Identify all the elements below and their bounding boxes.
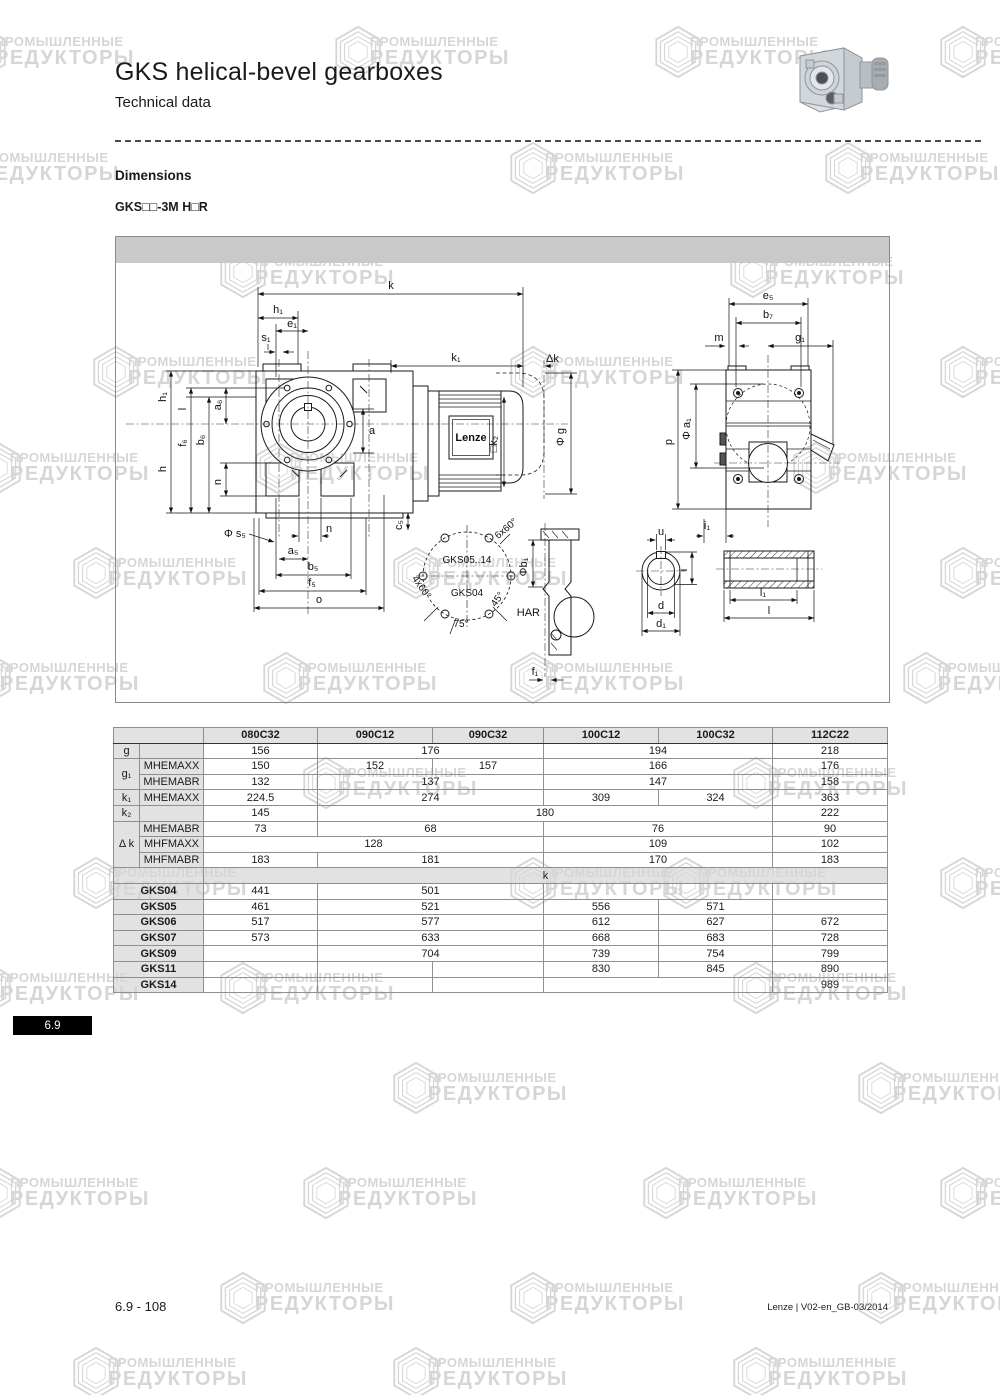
table-cell <box>433 961 544 977</box>
table-row: k <box>114 868 888 884</box>
table-cell <box>204 946 318 962</box>
table-cell: 627 <box>659 915 773 931</box>
watermark-line1: ПРОМЫШЛЕННЫЕ <box>545 1281 685 1295</box>
table-cell: 183 <box>204 852 318 868</box>
watermark-line1: ПРОМЫШЛЕННЫЕ <box>893 1071 1000 1085</box>
dim-label-n-bottom: n <box>326 523 332 535</box>
dim-label-l-left: l <box>177 408 189 410</box>
table-row: MHFMABR183181170183 <box>114 852 888 868</box>
table-cell: 147 <box>544 774 773 790</box>
dim-label-s5: Φ s₅ <box>224 528 246 540</box>
table-cell: 132 <box>204 774 318 790</box>
table-cell: g₁ <box>114 759 140 790</box>
table-cell: MHEMABR <box>140 821 204 837</box>
dimensions-table: 080C32090C12090C32100C12100C32112C22g 15… <box>113 727 890 993</box>
dim-label-l1: l₁ <box>760 587 766 599</box>
dim-label-e1: e₁ <box>287 318 297 330</box>
watermark: ПРОМЫШЛЕННЫЕРЕДУКТОРЫ <box>853 1058 1000 1118</box>
watermark-line1: ПРОМЫШЛЕННЫЕ <box>545 151 685 165</box>
table-cell: 090C32 <box>433 728 544 744</box>
technical-drawing: Lenze <box>115 236 890 703</box>
dim-label-d1: d₁ <box>656 618 666 630</box>
table-cell: GKS11 <box>114 961 204 977</box>
table-cell: 73 <box>204 821 318 837</box>
table-cell: 571 <box>659 899 773 915</box>
dim-label-n-left: n <box>212 479 224 485</box>
table-cell <box>140 805 204 821</box>
watermark: ПРОМЫШЛЕННЫЕРЕДУКТОРЫ <box>728 1343 908 1395</box>
table-cell: 150 <box>204 759 318 775</box>
dim-label-a6: a₆ <box>212 400 224 411</box>
watermark-line2: РЕДУКТОРЫ <box>975 368 1000 389</box>
section-heading: Dimensions <box>115 168 192 183</box>
watermark-line1: ПРОМЫШЛЕННЫЕ <box>255 1281 395 1295</box>
watermark: ПРОМЫШЛЕННЫЕРЕДУКТОРЫ <box>388 1058 568 1118</box>
table-cell <box>204 977 318 993</box>
table-cell: 224.5 <box>204 790 318 806</box>
table-cell: MHEMABR <box>140 774 204 790</box>
watermark-hexagon-logo <box>898 648 954 708</box>
watermark-line1: ПРОМЫШЛЕННЫЕ <box>0 35 135 49</box>
table-cell <box>140 743 204 759</box>
table-cell: 754 <box>659 946 773 962</box>
table-cell: 324 <box>659 790 773 806</box>
watermark-hexagon-logo <box>935 543 991 603</box>
watermark-line1: ПРОМЫШЛЕННЫЕ <box>428 1356 568 1370</box>
watermark-hexagon-logo <box>853 1268 909 1328</box>
watermark-line2: РЕДУКТОРЫ <box>768 1369 908 1390</box>
watermark-line2: РЕДУКТОРЫ <box>893 1084 1000 1105</box>
watermark: ПРОМЫШЛЕННЫЕРЕДУКТОРЫ <box>935 342 1000 402</box>
product-photo <box>786 40 896 122</box>
table-cell: 363 <box>773 790 888 806</box>
watermark: ПРОМЫШЛЕННЫЕРЕДУКТОРЫ <box>388 1343 568 1395</box>
table-cell: 183 <box>773 852 888 868</box>
watermark-line1: ПРОМЫШЛЕННЫЕ <box>768 1356 908 1370</box>
watermark-hexagon-logo <box>298 1163 354 1223</box>
table-cell: MHFMAXX <box>140 837 204 853</box>
table-row: MHFMAXX128109102 <box>114 837 888 853</box>
dim-label-b5: b₅ <box>308 561 319 573</box>
table-cell <box>318 977 433 993</box>
watermark-line1: ПРОМЫШЛЕННЫЕ <box>975 35 1000 49</box>
dim-label-h1-left: h₁ <box>157 392 169 402</box>
table-cell: 176 <box>773 759 888 775</box>
table-cell: 158 <box>773 774 888 790</box>
table-cell <box>773 899 888 915</box>
table-cell: 76 <box>544 821 773 837</box>
table-row: GKS11 830845890 <box>114 961 888 977</box>
table-cell: 517 <box>204 915 318 931</box>
table-cell: 128 <box>204 837 544 853</box>
divider-dashed <box>115 140 985 142</box>
table-cell: k₂ <box>114 805 140 821</box>
table-cell: 170 <box>544 852 773 868</box>
watermark-hexagon-logo <box>638 1163 694 1223</box>
table-cell: g <box>114 743 140 759</box>
table-cell <box>114 868 204 884</box>
watermark-line2: РЕДУКТОРЫ <box>428 1369 568 1390</box>
dim-label-a: a <box>369 425 376 437</box>
table-cell: 194 <box>544 743 773 759</box>
watermark: ПРОМЫШЛЕННЫЕРЕДУКТОРЫ <box>0 1163 150 1223</box>
dim-label-o: o <box>316 594 322 606</box>
watermark: ПРОМЫШЛЕННЫЕРЕДУКТОРЫ <box>853 1268 1000 1328</box>
watermark-line1: ПРОМЫШЛЕННЫЕ <box>975 1176 1000 1190</box>
watermark: ПРОМЫШЛЕННЫЕРЕДУКТОРЫ <box>935 853 1000 913</box>
table-cell: MHEMAXX <box>140 759 204 775</box>
table-cell: 309 <box>544 790 659 806</box>
watermark-hexagon-logo <box>853 1058 909 1118</box>
watermark-hexagon-logo <box>0 438 26 498</box>
table-cell: 728 <box>773 930 888 946</box>
dim-label-c5: c₅ <box>393 520 405 530</box>
table-cell: 274 <box>318 790 544 806</box>
watermark: ПРОМЫШЛЕННЫЕРЕДУКТОРЫ <box>638 1163 818 1223</box>
table-cell: 222 <box>773 805 888 821</box>
dim-label-h: h <box>157 466 169 472</box>
dim-label-m: m <box>714 332 723 344</box>
watermark-hexagon-logo <box>935 1163 991 1223</box>
dim-label-b7: b₇ <box>763 309 773 321</box>
table-cell <box>204 961 318 977</box>
watermark: ПРОМЫШЛЕННЫЕРЕДУКТОРЫ <box>505 1268 685 1328</box>
table-cell <box>433 977 544 993</box>
dim-label-h1-top: h₁ <box>273 304 283 316</box>
table-cell: 633 <box>318 930 544 946</box>
table-cell: GKS06 <box>114 915 204 931</box>
table-header-row: 080C32090C12090C32100C12100C32112C22 <box>114 728 888 744</box>
dim-label-g-dia: Φ g <box>555 428 567 446</box>
dim-label-l: l <box>768 605 770 617</box>
table-cell: 573 <box>204 930 318 946</box>
table-cell: GKS07 <box>114 930 204 946</box>
watermark-hexagon-logo <box>68 1343 124 1395</box>
table-cell: Δ k <box>114 821 140 868</box>
watermark-hexagon-logo <box>935 22 991 82</box>
watermark: ПРОМЫШЛЕННЫЕРЕДУКТОРЫ <box>0 138 120 198</box>
table-row: k₂ 145180222 <box>114 805 888 821</box>
dim-label-g1: g₁ <box>795 332 805 344</box>
watermark-line2: РЕДУКТОРЫ <box>975 48 1000 69</box>
drawing-header-strip <box>116 237 889 263</box>
section-tab-badge: 6.9 <box>13 1016 92 1035</box>
table-cell <box>544 883 773 899</box>
table-cell: 68 <box>318 821 544 837</box>
dim-label-k2: □k₂ <box>488 436 500 452</box>
watermark-line1: ПРОМЫШЛЕННЫЕ <box>10 1176 150 1190</box>
watermark-line1: ПРОМЫШЛЕННЫЕ <box>938 661 1000 675</box>
table-row: k₁MHEMAXX224.5274309324363 <box>114 790 888 806</box>
watermark-hexagon-logo <box>388 1343 444 1395</box>
watermark-hexagon-logo <box>820 138 876 198</box>
table-cell: GKS14 <box>114 977 204 993</box>
table-cell: 577 <box>318 915 544 931</box>
detail-label-4x60: 4x60° <box>409 574 433 601</box>
table-cell: GKS09 <box>114 946 204 962</box>
table-cell: 704 <box>318 946 544 962</box>
watermark-hexagon-logo <box>505 1268 561 1328</box>
table-cell: 152 <box>318 759 433 775</box>
table-cell: 112C22 <box>773 728 888 744</box>
watermark-hexagon-logo <box>0 958 16 1018</box>
watermark-line2: РЕДУКТОРЫ <box>338 1189 478 1210</box>
watermark-line1: ПРОМЫШЛЕННЫЕ <box>860 151 1000 165</box>
watermark-line2: РЕДУКТОРЫ <box>678 1189 818 1210</box>
brand-label: Lenze <box>455 432 486 444</box>
footer-document-id: Lenze | V02-en_GB-03/2014 <box>767 1302 888 1313</box>
watermark-line1: ПРОМЫШЛЕННЫЕ <box>370 35 510 49</box>
table-cell: 90 <box>773 821 888 837</box>
dim-label-k: k <box>388 280 394 292</box>
dim-label-f1: f₁ <box>532 666 539 678</box>
watermark-line1: ПРОМЫШЛЕННЫЕ <box>975 866 1000 880</box>
table-cell: 672 <box>773 915 888 931</box>
table-cell <box>318 961 433 977</box>
dim-label-b6: b₆ <box>195 435 207 446</box>
watermark: ПРОМЫШЛЕННЫЕРЕДУКТОРЫ <box>820 138 1000 198</box>
table-cell: 218 <box>773 743 888 759</box>
watermark-line2: РЕДУКТОРЫ <box>108 1369 248 1390</box>
detail-label-gks04: GKS04 <box>451 588 484 599</box>
dim-label-e5: e₅ <box>763 290 774 302</box>
table-cell: k₁ <box>114 790 140 806</box>
detail-label-75deg: 75° <box>453 619 468 630</box>
watermark: ПРОМЫШЛЕННЫЕРЕДУКТОРЫ <box>935 1163 1000 1223</box>
watermark-hexagon-logo <box>0 648 16 708</box>
watermark-hexagon-logo <box>728 1343 784 1395</box>
table-row: GKS06517577612627672 <box>114 915 888 931</box>
table-cell <box>773 883 888 899</box>
table-cell: 102 <box>773 837 888 853</box>
table-cell: 830 <box>544 961 659 977</box>
watermark-line2: РЕДУКТОРЫ <box>893 1294 1000 1315</box>
watermark: ПРОМЫШЛЕННЫЕРЕДУКТОРЫ <box>898 648 1000 708</box>
watermark-line1: ПРОМЫШЛЕННЫЕ <box>678 1176 818 1190</box>
table-cell: 157 <box>433 759 544 775</box>
watermark-hexagon-logo <box>0 22 11 82</box>
table-cell: 989 <box>773 977 888 993</box>
table-cell: 890 <box>773 961 888 977</box>
dim-label-s1: s₁ <box>261 332 271 344</box>
page: GKS helical-bevel gearboxes Technical da… <box>0 0 1000 1395</box>
watermark-hexagon-logo <box>0 1163 26 1223</box>
table-cell: 080C32 <box>204 728 318 744</box>
watermark-line1: ПРОМЫШЛЕННЫЕ <box>0 151 120 165</box>
table-cell: 461 <box>204 899 318 915</box>
table-cell: 845 <box>659 961 773 977</box>
table-cell <box>114 728 204 744</box>
watermark-hexagon-logo <box>215 1268 271 1328</box>
model-code: GKS□□-3M H□R <box>115 200 208 214</box>
watermark-line1: ПРОМЫШЛЕННЫЕ <box>975 355 1000 369</box>
watermark-line2: РЕДУКТОРЫ <box>975 879 1000 900</box>
watermark-line1: ПРОМЫШЛЕННЫЕ <box>975 556 1000 570</box>
table-row: GKS04441501 <box>114 883 888 899</box>
watermark-line2: РЕДУКТОРЫ <box>975 1189 1000 1210</box>
watermark-line1: ПРОМЫШЛЕННЫЕ <box>338 1176 478 1190</box>
detail-label-gks0514: GKS05..14 <box>443 555 492 566</box>
dim-label-a1: Φ a₁ <box>681 418 693 440</box>
watermark-line2: РЕДУКТОРЫ <box>975 569 1000 590</box>
table-cell <box>544 977 773 993</box>
watermark-line1: ПРОМЫШЛЕННЫЕ <box>893 1281 1000 1295</box>
watermark-line1: ПРОМЫШЛЕННЫЕ <box>108 1356 248 1370</box>
dim-label-f6: f₆ <box>177 439 189 447</box>
table-cell: 799 <box>773 946 888 962</box>
table-cell: 668 <box>544 930 659 946</box>
watermark: ПРОМЫШЛЕННЫЕРЕДУКТОРЫ <box>935 543 1000 603</box>
table-cell: 145 <box>204 805 318 821</box>
watermark-line2: РЕДУКТОРЫ <box>10 1189 150 1210</box>
watermark: ПРОМЫШЛЕННЫЕРЕДУКТОРЫ <box>215 1268 395 1328</box>
table-cell: MHEMAXX <box>140 790 204 806</box>
table-cell: 180 <box>318 805 773 821</box>
watermark-line2: РЕДУКТОРЫ <box>545 1294 685 1315</box>
table-cell: GKS05 <box>114 899 204 915</box>
table-cell: 181 <box>318 852 544 868</box>
table-cell: 739 <box>544 946 659 962</box>
table-row: Δ kMHEMABR73687690 <box>114 821 888 837</box>
watermark: ПРОМЫШЛЕННЫЕРЕДУКТОРЫ <box>505 138 685 198</box>
dim-label-d: d <box>658 600 664 612</box>
table-cell: 166 <box>544 759 773 775</box>
watermark-hexagon-logo <box>935 853 991 913</box>
table-cell: 556 <box>544 899 659 915</box>
dim-label-dk: Δk <box>546 353 559 365</box>
table-cell: 501 <box>318 883 544 899</box>
page-subtitle: Technical data <box>115 94 211 111</box>
watermark-line2: РЕДУКТОРЫ <box>938 674 1000 695</box>
table-row: GKS14 989 <box>114 977 888 993</box>
table-cell: MHFMABR <box>140 852 204 868</box>
watermark-line2: РЕДУКТОРЫ <box>0 164 120 185</box>
dim-label-a5: a₅ <box>288 545 299 557</box>
table-cell: 137 <box>318 774 544 790</box>
watermark: ПРОМЫШЛЕННЫЕРЕДУКТОРЫ <box>68 1343 248 1395</box>
watermark-line1: ПРОМЫШЛЕННЫЕ <box>428 1071 568 1085</box>
table-row: GKS09 704739754799 <box>114 946 888 962</box>
dim-label-u: u <box>658 526 664 538</box>
watermark: ПРОМЫШЛЕННЫЕРЕДУКТОРЫ <box>935 22 1000 82</box>
watermark-hexagon-logo <box>505 138 561 198</box>
watermark-line2: РЕДУКТОРЫ <box>255 1294 395 1315</box>
table-cell: 176 <box>318 743 544 759</box>
table-row: g₁MHEMAXX150152157166176 <box>114 759 888 775</box>
table-cell: 612 <box>544 915 659 931</box>
detail-label-b1: Φb₁ <box>518 557 530 576</box>
dim-label-f5: f₅ <box>308 577 316 589</box>
watermark: ПРОМЫШЛЕННЫЕРЕДУКТОРЫ <box>298 1163 478 1223</box>
dim-label-p: p <box>663 439 675 445</box>
table-cell: GKS04 <box>114 883 204 899</box>
table-cell: 521 <box>318 899 544 915</box>
table-cell: 090C12 <box>318 728 433 744</box>
footer-page-number: 6.9 - 108 <box>115 1299 166 1314</box>
table-row: GKS07573633668683728 <box>114 930 888 946</box>
table-cell: 683 <box>659 930 773 946</box>
table-cell: 156 <box>204 743 318 759</box>
watermark-hexagon-logo <box>388 1058 444 1118</box>
watermark-line2: РЕДУКТОРЫ <box>860 164 1000 185</box>
table-cell: k <box>204 868 888 884</box>
watermark-line2: РЕДУКТОРЫ <box>545 164 685 185</box>
table-cell: 441 <box>204 883 318 899</box>
dim-label-i1: i₁ <box>704 520 710 532</box>
watermark-line2: РЕДУКТОРЫ <box>428 1084 568 1105</box>
table-row: GKS05461521556571 <box>114 899 888 915</box>
dim-label-i: i <box>678 569 690 571</box>
detail-label-har: HAR <box>517 607 540 619</box>
watermark-hexagon-logo <box>935 342 991 402</box>
page-title: GKS helical-bevel gearboxes <box>115 58 443 87</box>
watermark-hexagon-logo <box>650 22 706 82</box>
table-row: g 156176194218 <box>114 743 888 759</box>
table-cell: 109 <box>544 837 773 853</box>
table-row: MHEMABR132137147158 <box>114 774 888 790</box>
table-cell: 100C12 <box>544 728 659 744</box>
detail-label-45deg: 45° <box>489 590 507 609</box>
dim-label-k1: k₁ <box>451 352 461 364</box>
table-cell: 100C32 <box>659 728 773 744</box>
